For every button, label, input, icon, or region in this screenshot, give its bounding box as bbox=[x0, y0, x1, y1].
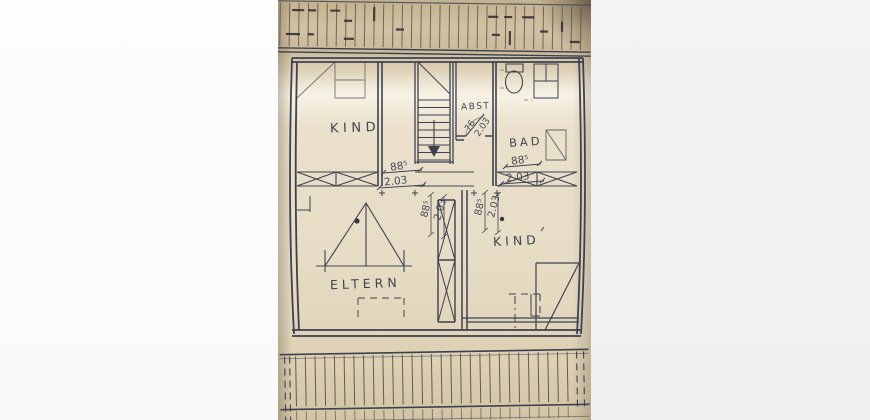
roof-slope-lines bbox=[297, 62, 365, 98]
lower-door-dimensions: 88⁵ 2.03 88⁵ 2.03 bbox=[419, 190, 502, 239]
stair-down-arrow-icon bbox=[428, 120, 440, 157]
bottom-joist-band bbox=[280, 349, 590, 420]
hatched-wall-band bbox=[297, 172, 577, 196]
skylight-dashed-outline bbox=[358, 298, 404, 320]
floor-plan-drawing: KIND ABST 76 2.03 bbox=[278, 0, 591, 420]
left-margin bbox=[0, 0, 278, 420]
room-abst: ABST 76 2.03 bbox=[456, 62, 496, 186]
dark-fixture-marks bbox=[286, 6, 580, 46]
blueprint-photo: KIND ABST 76 2.03 bbox=[278, 0, 591, 420]
room-bad: BAD 88⁵ 2.03 bbox=[499, 64, 566, 186]
staircase bbox=[415, 62, 453, 164]
dim-eltern-door-height: 2.03 bbox=[432, 197, 449, 221]
room-kind-lower: KIND bbox=[462, 217, 579, 330]
toilet-icon bbox=[506, 64, 524, 93]
right-margin bbox=[591, 0, 870, 420]
sink-cabinet-icon bbox=[534, 64, 558, 98]
room-kind-upper: KIND bbox=[297, 62, 382, 186]
pen-dot bbox=[354, 218, 359, 223]
room-label-eltern: ELTERN bbox=[330, 275, 401, 292]
pen-dot bbox=[500, 217, 504, 221]
room-eltern: ELTERN bbox=[297, 196, 412, 320]
top-joist-band bbox=[278, 1, 591, 56]
room-label-bad: BAD bbox=[509, 134, 544, 150]
room-label-abst: ABST bbox=[461, 101, 491, 113]
dim-kind-lower-door-height: 2.03 bbox=[486, 194, 502, 218]
dim-eltern-door-width: 88⁵ bbox=[419, 200, 434, 219]
room-label-kind-lower: KIND bbox=[493, 232, 541, 249]
roof-dormer-triangle bbox=[316, 203, 412, 272]
screenshot: KIND ABST 76 2.03 bbox=[0, 0, 870, 420]
roof-slope-lines bbox=[536, 263, 579, 330]
room-label-kind-upper: KIND bbox=[330, 120, 381, 137]
bath-window-lines bbox=[546, 130, 566, 160]
